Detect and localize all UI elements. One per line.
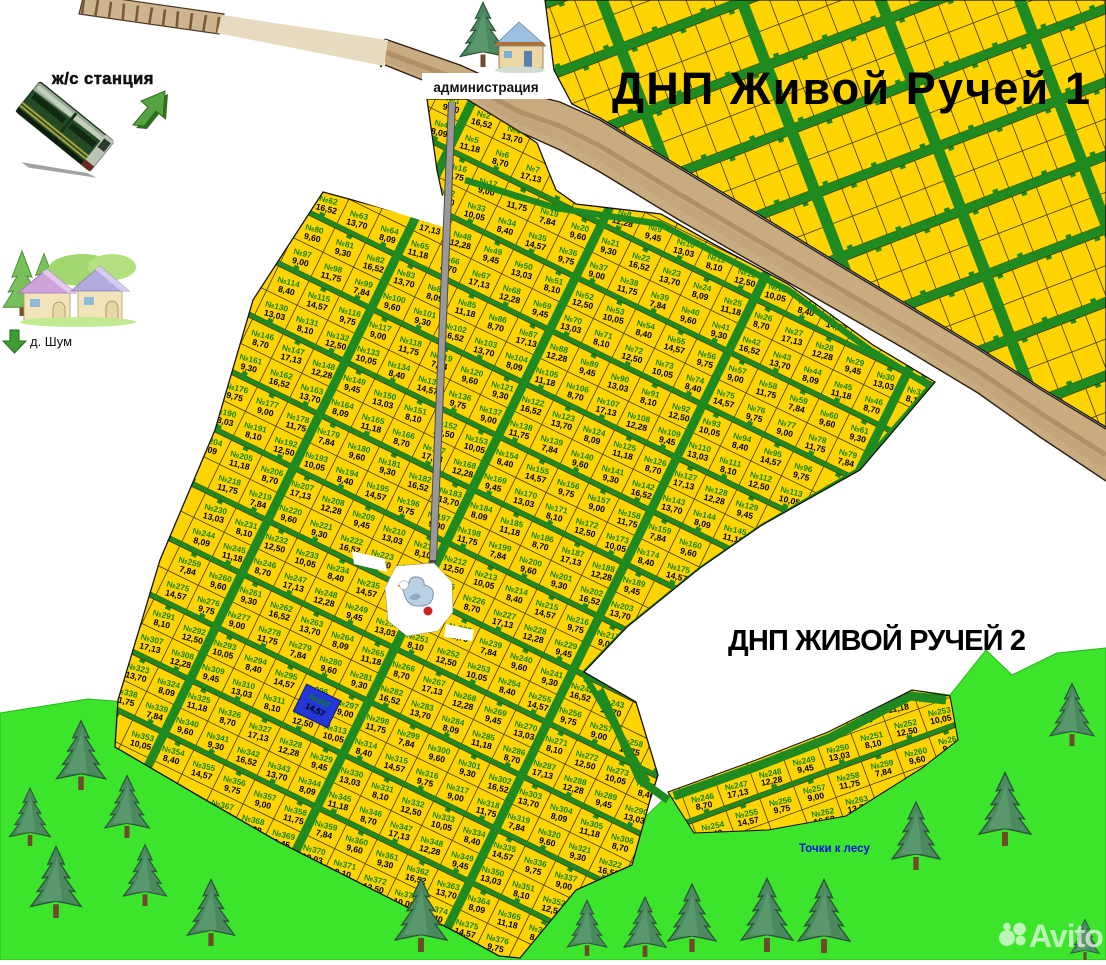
svg-text:Avito: Avito	[1029, 918, 1103, 954]
svg-text:ДНП Живой Ручей 1: ДНП Живой Ручей 1	[612, 63, 1090, 114]
svg-text:Точки к лесу: Точки к лесу	[799, 843, 870, 855]
svg-text:д. Шум: д. Шум	[30, 334, 72, 349]
svg-text:ДНП ЖИВОЙ РУЧЕЙ 2: ДНП ЖИВОЙ РУЧЕЙ 2	[728, 623, 1026, 657]
svg-text:ж/с станция: ж/с станция	[51, 70, 154, 88]
svg-text:администрация: администрация	[433, 80, 538, 95]
